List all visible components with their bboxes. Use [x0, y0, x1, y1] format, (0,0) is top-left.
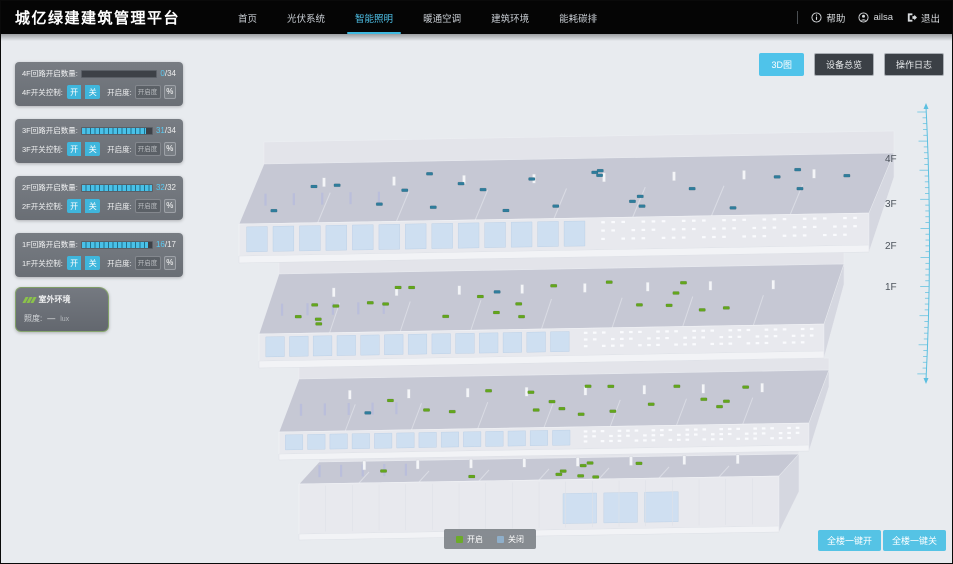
- circuit-count-value-2f: 32/32: [156, 183, 176, 192]
- percent-button-3f[interactable]: %: [164, 142, 176, 156]
- legend-off-swatch: [497, 536, 504, 543]
- switch-off-button-4f[interactable]: 关: [85, 85, 100, 99]
- switch-on-button-2f[interactable]: 开: [67, 199, 82, 213]
- all-off-button[interactable]: 全楼一键关: [883, 530, 946, 551]
- platform-title: 城亿绿建建筑管理平台: [15, 7, 180, 28]
- header-user-area: 帮助 ailsa 退出: [797, 11, 940, 25]
- floor-scale-label-2f: 2F: [885, 241, 907, 252]
- legend-off-label: 关闭: [508, 534, 524, 545]
- circuit-progress-2f: [81, 184, 153, 192]
- header-divider: [797, 11, 798, 24]
- nav-item-energy-carbon[interactable]: 能耗碳排: [559, 9, 597, 27]
- app-window: 城亿绿建建筑管理平台 首页 光伏系统 智能照明 暖通空调 建筑环境 能耗碳排 帮…: [0, 0, 953, 564]
- floor-panel-3f: 3F回路开启数量: 31/34 3F开关控制: 开 关 开启度: %: [15, 119, 183, 163]
- building-floor-4f: [239, 131, 894, 263]
- logout-button[interactable]: 退出: [906, 11, 940, 25]
- nav-item-smart-lighting[interactable]: 智能照明: [355, 9, 393, 27]
- circuit-count-value-1f: 16/17: [156, 240, 176, 249]
- circuit-progress-4f: [81, 70, 158, 78]
- dim-label-1f: 开启度:: [107, 258, 132, 269]
- dim-label-3f: 开启度:: [107, 144, 132, 155]
- floor-control-sidebar: 4F回路开启数量: 0/34 4F开关控制: 开 关 开启度: % 3F回路开启…: [15, 62, 183, 332]
- dim-label-4f: 开启度:: [107, 87, 132, 98]
- device-overview-button[interactable]: 设备总览: [814, 53, 874, 76]
- bulk-action-toolbar: 全楼一键开 全楼一键关: [818, 530, 946, 551]
- lights-legend: 开启 关闭: [444, 529, 536, 549]
- dim-label-2f: 开启度:: [107, 201, 132, 212]
- help-info-icon: [811, 12, 822, 23]
- percent-button-1f[interactable]: %: [164, 256, 176, 270]
- floor-panel-4f: 4F回路开启数量: 0/34 4F开关控制: 开 关 开启度: %: [15, 62, 183, 106]
- circuit-count-label-1f: 1F回路开启数量:: [22, 239, 78, 250]
- percent-button-2f[interactable]: %: [164, 199, 176, 213]
- help-label: 帮助: [826, 11, 845, 25]
- help-button[interactable]: 帮助: [811, 11, 845, 25]
- floor-panel-2f: 2F回路开启数量: 32/32 2F开关控制: 开 关 开启度: %: [15, 176, 183, 220]
- dim-input-3f[interactable]: [135, 142, 161, 156]
- all-on-button[interactable]: 全楼一键开: [818, 530, 881, 551]
- floor-level-ruler[interactable]: [910, 101, 944, 386]
- logout-label: 退出: [921, 11, 940, 25]
- legend-item-on: 开启: [456, 534, 483, 545]
- legend-on-swatch: [456, 536, 463, 543]
- switch-control-label-3f: 3F开关控制:: [22, 144, 63, 155]
- nav-item-pv-system[interactable]: 光伏系统: [287, 9, 325, 27]
- circuit-count-label-2f: 2F回路开启数量:: [22, 182, 78, 193]
- building-floor-2f: [279, 358, 829, 460]
- username-label: ailsa: [873, 12, 893, 23]
- switch-off-button-2f[interactable]: 关: [85, 199, 100, 213]
- switch-on-button-3f[interactable]: 开: [67, 142, 82, 156]
- dim-input-2f[interactable]: [135, 199, 161, 213]
- circuit-count-label-4f: 4F回路开启数量:: [22, 68, 78, 79]
- top-navbar: 城亿绿建建筑管理平台 首页 光伏系统 智能照明 暖通空调 建筑环境 能耗碳排 帮…: [1, 1, 952, 34]
- switch-on-button-1f[interactable]: 开: [67, 256, 82, 270]
- main-nav: 首页 光伏系统 智能照明 暖通空调 建筑环境 能耗碳排: [238, 9, 597, 27]
- dim-input-4f[interactable]: [135, 85, 161, 99]
- view-mode-toolbar: 3D图 设备总览 操作日志: [759, 53, 944, 76]
- illuminance-unit: lux: [60, 316, 69, 323]
- user-avatar-icon: [858, 12, 869, 23]
- floor-scale-label-1f: 1F: [885, 282, 907, 293]
- view-3d-button[interactable]: 3D图: [759, 53, 804, 76]
- floor-panel-1f: 1F回路开启数量: 16/17 1F开关控制: 开 关 开启度: %: [15, 233, 183, 277]
- circuit-progress-1f: [81, 241, 153, 249]
- circuit-count-value-4f: 0/34: [160, 69, 176, 78]
- outdoor-panel-title: 室外环境: [39, 294, 71, 305]
- switch-control-label-1f: 1F开关控制:: [22, 258, 63, 269]
- illuminance-label: 照度:: [24, 313, 42, 324]
- switch-off-button-3f[interactable]: 关: [85, 142, 100, 156]
- operation-log-button[interactable]: 操作日志: [884, 53, 944, 76]
- percent-button-4f[interactable]: %: [164, 85, 176, 99]
- building-3d-model[interactable]: [226, 129, 906, 564]
- switch-off-button-1f[interactable]: 关: [85, 256, 100, 270]
- nav-item-hvac[interactable]: 暖通空调: [423, 9, 461, 27]
- logout-icon: [906, 12, 917, 23]
- switch-control-label-2f: 2F开关控制:: [22, 201, 63, 212]
- legend-item-off: 关闭: [497, 534, 524, 545]
- floor-scale-label-4f: 4F: [885, 154, 907, 165]
- circuit-count-value-3f: 31/34: [156, 126, 176, 135]
- building-floor-3f: [259, 250, 844, 368]
- nav-item-home[interactable]: 首页: [238, 9, 257, 27]
- floor-scale-label-3f: 3F: [885, 199, 907, 210]
- switch-on-button-4f[interactable]: 开: [67, 85, 82, 99]
- legend-on-label: 开启: [467, 534, 483, 545]
- outdoor-environment-panel: 室外环境 照度: — lux: [15, 287, 109, 332]
- nav-item-building-env[interactable]: 建筑环境: [491, 9, 529, 27]
- switch-control-label-4f: 4F开关控制:: [22, 87, 63, 98]
- outdoor-env-icon: [24, 297, 35, 303]
- circuit-progress-3f: [81, 127, 153, 135]
- user-menu[interactable]: ailsa: [858, 12, 893, 23]
- dim-input-1f[interactable]: [135, 256, 161, 270]
- circuit-count-label-3f: 3F回路开启数量:: [22, 125, 78, 136]
- illuminance-value: —: [47, 314, 55, 323]
